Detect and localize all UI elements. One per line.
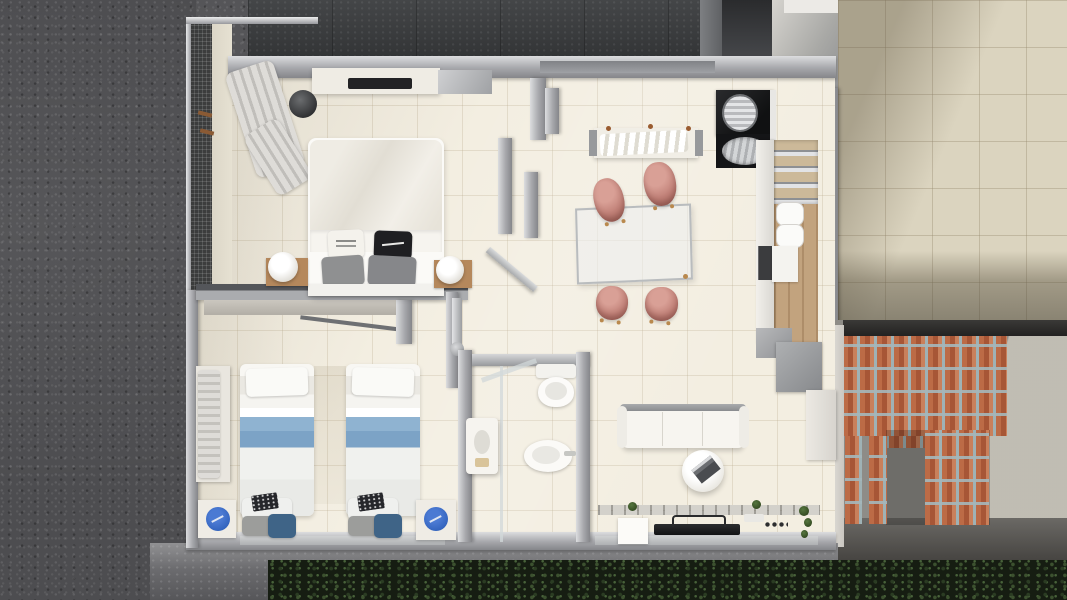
toilet-seat-inner	[545, 382, 567, 400]
top-window-frame	[540, 60, 715, 73]
built-in-oven	[758, 246, 772, 280]
glass-partition	[500, 366, 503, 542]
trailing-plant-tip	[801, 530, 808, 538]
laundry-basket	[289, 90, 317, 118]
hall-wall-upper	[524, 172, 538, 238]
utility-white-column	[806, 390, 836, 460]
sofa-body	[622, 411, 744, 448]
balcony-rail-frame-left	[186, 20, 191, 296]
twin-room-desk-shelf	[204, 300, 404, 315]
brick-pillar-2	[869, 436, 887, 524]
console-pin-2	[648, 124, 653, 129]
asphalt-road	[0, 0, 196, 600]
bathroom-wall-right	[576, 352, 590, 542]
sill-plant-right	[752, 500, 761, 509]
porch-header-bar	[843, 320, 1067, 336]
double-bed-duvet	[310, 140, 442, 232]
white-low-cabinet	[618, 518, 648, 544]
console-pin-1	[606, 126, 611, 131]
toilet-cistern	[536, 364, 576, 378]
round-lamp-left	[268, 252, 298, 282]
sofa-seat-line-1	[662, 412, 663, 446]
master-closet-wall	[498, 138, 512, 234]
console-pin-3	[686, 126, 691, 131]
table-foot-mark	[683, 274, 688, 279]
kitchen-white-block	[772, 246, 798, 282]
round-lamp-right	[436, 256, 464, 284]
storage-cabinet-2	[776, 342, 822, 392]
single-bed-left-pillow	[246, 367, 309, 397]
floor-shadow-between-beds	[314, 366, 346, 504]
balcony-rail-frame-top	[186, 17, 318, 24]
grey-cushion-right	[367, 255, 417, 287]
glass-dining-table	[575, 203, 693, 284]
pillow-text-marks	[336, 240, 356, 242]
kitchen-tall-counter	[756, 140, 774, 344]
canister-1	[776, 202, 804, 226]
bidet-basin	[532, 446, 560, 464]
shelf-bracket	[438, 70, 492, 94]
tv-soundbar	[348, 78, 412, 89]
terrace-tiled-floor	[838, 0, 1067, 330]
sill-plant-left	[628, 502, 637, 511]
wardrobe-clothes	[198, 370, 220, 478]
headboard	[308, 284, 444, 296]
bidet-tap	[564, 451, 576, 456]
dining-partition-top	[530, 78, 546, 140]
concrete-wall-band	[248, 0, 722, 62]
brick-pillar-1	[845, 436, 862, 524]
bed-right-foot-cushion-blue	[374, 514, 402, 538]
trailing-plant-top	[799, 506, 809, 516]
canister-2	[776, 224, 804, 248]
water-heater-cylinder	[724, 96, 756, 130]
console-support-left	[589, 130, 597, 156]
trailing-plant-mid	[804, 518, 812, 527]
twin-room-side-panel	[396, 300, 412, 344]
console-support-right	[695, 130, 703, 156]
roadside-hedge	[268, 560, 1067, 600]
entry-structure-top	[784, 0, 838, 13]
brick-screen	[843, 336, 1007, 436]
bed-left-foot-cushion-blue	[268, 514, 296, 538]
timber-steps	[772, 140, 818, 204]
washbasin-bowl	[474, 430, 490, 454]
floor-plan-render	[0, 0, 1067, 600]
balcony-mesh-railing	[190, 24, 212, 290]
single-bed-right-pillow	[352, 367, 415, 397]
sofa-armrest-right	[739, 406, 749, 448]
remote-control	[744, 514, 764, 522]
brick-pillar-3	[925, 430, 989, 525]
grey-cushion-left	[321, 255, 365, 288]
washbasin-soap	[475, 458, 489, 467]
knob-row	[764, 522, 788, 527]
blue-tray-left	[206, 507, 230, 531]
dining-wall-piece	[545, 88, 559, 134]
sofa-armrest-left	[617, 406, 627, 448]
tv-bracket	[672, 515, 726, 527]
blue-tray-right	[424, 507, 448, 531]
console-cloth	[599, 130, 688, 157]
sofa-seat-line-2	[702, 412, 703, 446]
